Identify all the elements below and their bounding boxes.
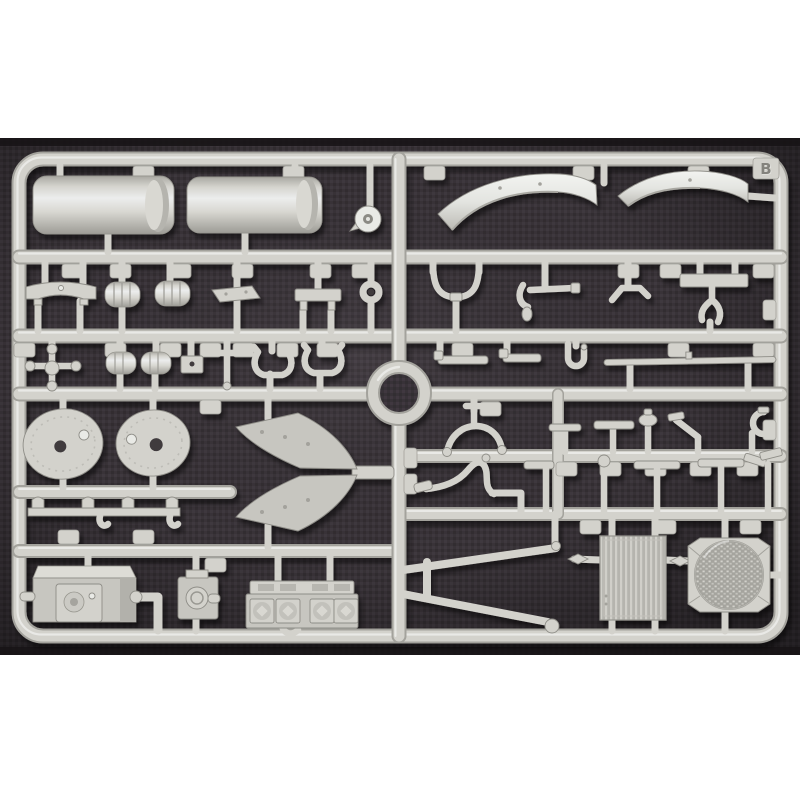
head-boss-2 — [276, 599, 300, 623]
sprue-photo-svg: B B — [0, 0, 800, 800]
runner-ring — [373, 367, 425, 419]
sprue-letter: B — [760, 160, 771, 178]
sprue-photo: B B — [0, 0, 800, 804]
junction-block — [181, 356, 203, 373]
fuel-tank-half-1 — [33, 176, 174, 234]
sprue-letter-tab: B B — [753, 158, 779, 179]
towing-eye-ring — [363, 284, 379, 300]
fuel-pump-housing — [178, 570, 220, 619]
muffler-2 — [155, 281, 190, 306]
fuel-tank-half-2 — [187, 177, 322, 233]
fan-shroud-grille — [688, 538, 770, 612]
muffler-1 — [105, 282, 140, 307]
muffler-small-2 — [141, 352, 171, 374]
head-boss-3 — [310, 599, 334, 623]
head-boss-4 — [334, 599, 358, 623]
engine-block — [20, 566, 136, 622]
muffler-small-1 — [106, 352, 136, 374]
cylinder-head — [246, 581, 358, 628]
head-boss-1 — [250, 599, 274, 623]
